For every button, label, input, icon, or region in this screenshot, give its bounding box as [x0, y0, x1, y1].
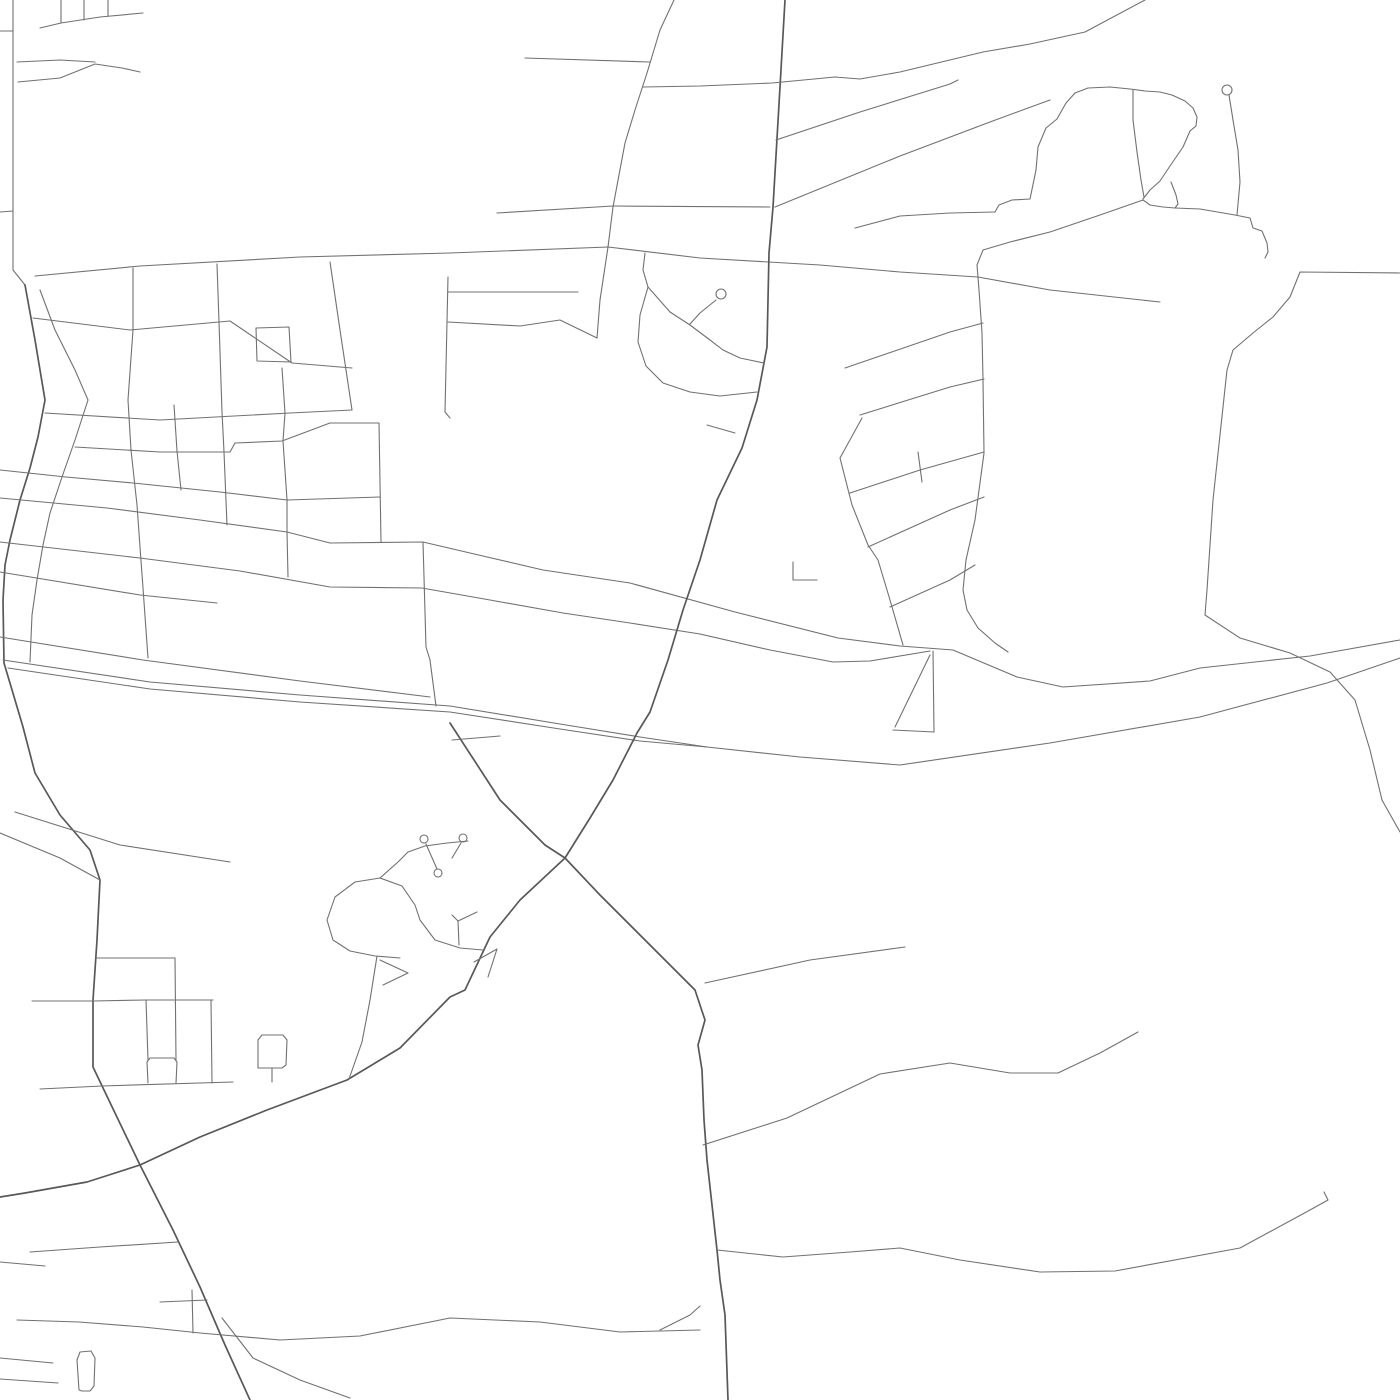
road-c-curve-center [638, 287, 757, 396]
road-grid-h4-long-east [0, 498, 1400, 687]
road-plus-v [192, 1290, 193, 1333]
road-small-triangle [380, 960, 408, 985]
road-stub-425 [707, 425, 735, 433]
loop-cul-de-sac-b [434, 869, 442, 877]
road-u-rect [147, 1058, 177, 1083]
road-wedge-bottom [18, 64, 140, 82]
map-canvas [0, 0, 1400, 1400]
road-road-R1-ns [597, 0, 674, 338]
road-culdesac-loop [327, 878, 400, 958]
road-road-B-main-ew [35, 247, 1160, 302]
road-sw-diag-2 [0, 833, 100, 880]
road-minigrid-h [40, 13, 143, 28]
road-wedge-top [17, 60, 95, 62]
road-grid-v-447 [445, 277, 450, 418]
road-block-h-1000 [32, 1000, 213, 1001]
road-blob-left-h [855, 212, 995, 228]
road-bottom-road-1320 [17, 1318, 700, 1340]
road-y-stub-b [458, 921, 459, 945]
road-grid-v-217 [217, 264, 227, 525]
road-blob-inner-diag [1143, 131, 1190, 199]
road-blob-chain-east [1175, 208, 1268, 258]
road-seg-210 [497, 206, 613, 213]
road-rail-east-single [707, 658, 1400, 765]
road-blob-sweep-sw [963, 200, 1143, 652]
road-grid-v-380 [379, 423, 381, 542]
road-road-R5-ne [643, 0, 1145, 87]
road-bottom-spur [660, 1306, 700, 1330]
road-ne-grid-main [840, 418, 903, 645]
road-grid-v-424 [423, 542, 436, 706]
road-ne-rung-2 [868, 497, 984, 547]
road-ne-grid-g3 [775, 100, 1050, 207]
road-triangle-v [933, 651, 934, 732]
road-ne-h0a [845, 323, 983, 368]
road-stub-1379 [0, 1379, 58, 1383]
road-y-stub-a [452, 912, 477, 921]
road-blob-tab [1143, 182, 1178, 208]
road-stub-1262 [0, 1262, 45, 1266]
road-grid-h1 [45, 410, 352, 420]
road-loop-vert-ne [1229, 95, 1240, 215]
road-road-R3-south [450, 723, 728, 1400]
road-lower-right-3 [705, 947, 905, 983]
road-ne-notch [793, 562, 817, 580]
road-grid-v-133 [128, 268, 148, 658]
road-seg-58 [525, 58, 650, 62]
road-triangle-d [895, 655, 930, 727]
road-stub-1358 [0, 1358, 53, 1363]
road-connector-1245 [30, 1242, 178, 1252]
road-rounded-rect-2 [258, 1035, 287, 1068]
road-block-v-146 [146, 1000, 148, 1060]
road-connector-205 [613, 206, 770, 207]
road-culdesac-arc-up [380, 841, 468, 878]
loop-teardrop-ne [1222, 85, 1232, 95]
road-left-edge-stub-2 [0, 211, 13, 212]
road-grid-h3 [0, 470, 380, 500]
road-slant-vertical [330, 262, 352, 410]
road-plus-h [160, 1300, 207, 1302]
road-branch-645 [643, 253, 648, 287]
road-grid-v-174 [174, 405, 181, 490]
road-blob-outer [995, 87, 1197, 212]
road-grid-h2 [75, 423, 379, 452]
road-loop-connector-s [349, 956, 377, 1079]
road-block-v-175 [175, 958, 176, 1060]
road-lower-right-2 [703, 1032, 1138, 1145]
road-triangle-b [893, 730, 934, 732]
road-sw-diag-1 [15, 812, 230, 862]
road-ne-rung-3 [890, 565, 975, 607]
road-road-R2-highway [0, 0, 785, 1197]
road-barbell-2-stem [452, 843, 461, 858]
road-lower-right-1 [717, 1192, 1328, 1272]
road-diag-road-center [648, 287, 764, 363]
road-ne-rung-1 [850, 452, 984, 493]
road-grid-h5-b2 [0, 542, 930, 662]
road-right-corner-road [1205, 272, 1400, 832]
road-ne-grid-g2 [776, 80, 958, 140]
road-grid-v-283 [282, 368, 288, 577]
road-block-rect-1 [256, 327, 291, 362]
road-rounded-rect-3 [77, 1351, 95, 1391]
road-block-v-211 [211, 1000, 212, 1083]
road-ne-h0b [860, 379, 984, 415]
road-blob-inner-vert [1133, 90, 1144, 197]
street-map [0, 0, 1400, 1400]
road-ne-rung-v [918, 452, 922, 482]
road-rail-line-2 [8, 668, 707, 747]
road-loop-stem-center [690, 300, 716, 324]
loop-cul-de-sac-c [459, 834, 467, 842]
road-stub-322 [448, 320, 597, 338]
road-barbell-1-stem [426, 844, 437, 869]
road-left-vertical-north [13, 0, 25, 285]
road-se-branch [222, 1318, 350, 1398]
loop-teardrop-center [716, 289, 726, 299]
road-grid-h6 [0, 572, 217, 603]
road-road-b-upper [33, 318, 352, 368]
road-block-h-1083 [40, 1082, 233, 1089]
road-rail-line-1 [3, 660, 707, 747]
road-culdesac-arc-low [380, 878, 483, 950]
loop-cul-de-sac-a [420, 835, 428, 843]
